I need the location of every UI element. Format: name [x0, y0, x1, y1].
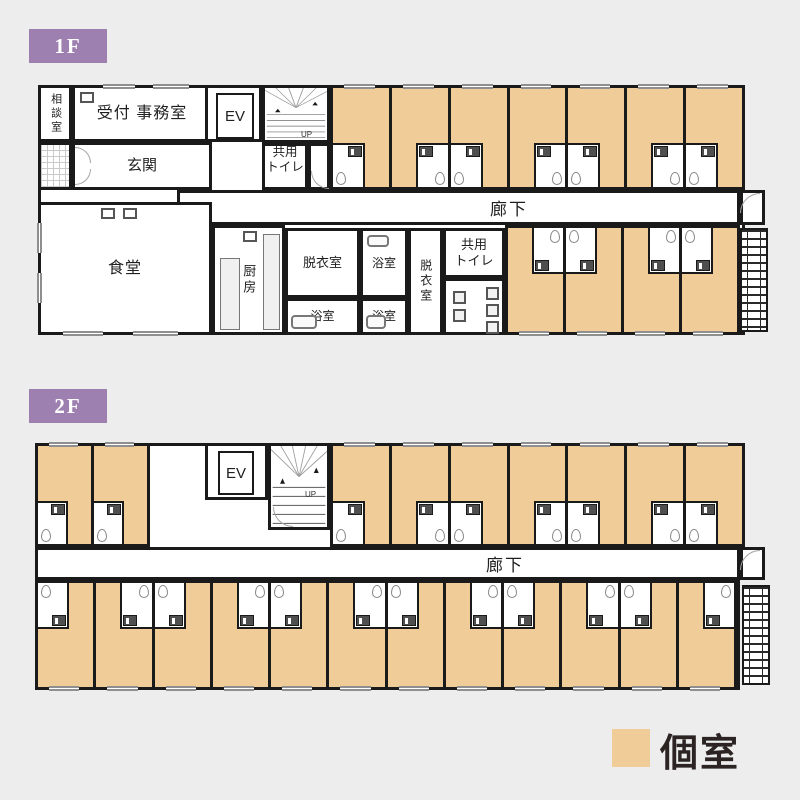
floor2-topleft-room-row	[35, 443, 150, 547]
sink-icon	[123, 615, 137, 626]
room-bathroom	[703, 583, 734, 629]
door-arc	[740, 550, 760, 570]
room-bathroom	[534, 143, 566, 187]
private-room	[268, 583, 326, 687]
window-mark	[344, 442, 375, 447]
toilet-icon	[435, 172, 445, 185]
private-room	[91, 446, 147, 544]
kitchen-counter-icon	[220, 258, 240, 330]
private-room	[333, 88, 389, 187]
private-room	[679, 228, 737, 332]
window-mark	[37, 223, 42, 253]
sink-icon	[348, 146, 362, 157]
private-room	[38, 583, 93, 687]
elevator-2f-label: EV	[226, 465, 246, 482]
room-bathroom	[155, 583, 186, 629]
window-mark	[103, 84, 135, 89]
floor2-badge: 2F	[29, 389, 107, 423]
window-mark	[635, 331, 665, 336]
sink-icon	[583, 504, 597, 515]
sink-icon	[107, 504, 121, 515]
private-room	[565, 446, 624, 544]
room-bathroom	[651, 143, 683, 187]
sink-icon	[535, 260, 549, 271]
sink-icon	[419, 504, 433, 515]
external-stair-2f	[742, 585, 770, 685]
room-bathroom	[333, 501, 365, 544]
private-room	[624, 88, 683, 187]
sink-icon	[583, 146, 597, 157]
room-bathroom	[120, 583, 151, 629]
private-room	[683, 446, 742, 544]
toilet-icon	[552, 172, 562, 185]
window-mark	[515, 686, 545, 691]
legend-swatch	[612, 729, 650, 767]
door-arc	[75, 147, 91, 163]
door-arc	[311, 171, 329, 189]
private-room	[389, 88, 448, 187]
floor2-corridor-label: 廊下	[486, 556, 524, 576]
bath-room-lower-mid: 浴室	[360, 298, 408, 335]
toilet-icon	[550, 230, 560, 243]
staircase-icon	[265, 88, 327, 140]
kitchen: 厨房	[212, 225, 285, 335]
room-bathroom	[271, 583, 302, 629]
floor2-plan: EV UP 廊下	[35, 443, 770, 690]
elevator-2f: EV	[218, 451, 254, 495]
room-bathroom	[416, 143, 448, 187]
room-bathroom	[470, 583, 501, 629]
private-room	[618, 583, 676, 687]
reception-office-label: 受付 事務室	[97, 104, 187, 123]
window-mark	[282, 686, 312, 691]
floor1-bottom-room-row	[505, 225, 740, 335]
room-bathroom	[686, 501, 718, 544]
private-room	[385, 583, 443, 687]
window-mark	[697, 84, 728, 89]
private-room	[507, 88, 566, 187]
sink-icon	[466, 146, 480, 157]
private-room	[676, 583, 734, 687]
dining-room-label: 食堂	[108, 259, 142, 278]
toilet-icon	[391, 585, 401, 598]
private-room	[559, 583, 617, 687]
toilet-icon	[158, 585, 168, 598]
room-bathroom	[686, 143, 718, 187]
private-room	[326, 583, 384, 687]
consult-room: 相談室	[38, 85, 72, 142]
window-mark	[462, 442, 493, 447]
elevator-1f-label: EV	[225, 108, 245, 125]
private-room	[683, 88, 742, 187]
room-bathroom	[451, 143, 483, 187]
private-room	[448, 446, 507, 544]
private-room	[621, 228, 679, 332]
entrance-hall: 玄関	[72, 142, 212, 190]
sink-icon	[537, 146, 551, 157]
toilet-icon	[552, 529, 562, 542]
window-mark	[697, 442, 728, 447]
basin-icon	[243, 231, 257, 242]
sink-icon	[635, 615, 649, 626]
bathtub-icon	[366, 315, 386, 329]
toilet-icon	[624, 585, 634, 598]
sink-icon	[348, 504, 362, 515]
private-room	[333, 446, 389, 544]
toilet-icon	[569, 230, 579, 243]
private-room	[448, 88, 507, 187]
sink-icon	[169, 615, 183, 626]
room-bathroom	[504, 583, 535, 629]
table-icon	[101, 208, 115, 219]
private-room	[624, 446, 683, 544]
private-room	[565, 88, 624, 187]
window-mark	[344, 84, 375, 89]
window-mark	[462, 84, 493, 89]
sink-icon	[701, 504, 715, 515]
toilet-icon	[41, 585, 51, 598]
door-arc	[75, 169, 91, 185]
elevator-1f: EV	[216, 93, 254, 139]
room-bathroom	[621, 583, 652, 629]
toilet-icon	[139, 585, 149, 598]
sink-icon	[537, 504, 551, 515]
sink-icon	[466, 504, 480, 515]
window-mark	[37, 273, 42, 303]
toilet-icon	[255, 585, 265, 598]
room-bathroom	[682, 228, 713, 274]
external-stair-1f	[740, 228, 768, 332]
entrance-porch	[38, 142, 72, 190]
sink-icon	[402, 615, 416, 626]
window-mark	[403, 442, 434, 447]
sink-icon	[240, 615, 254, 626]
window-mark	[399, 686, 429, 691]
floor1-top-room-row	[330, 85, 745, 190]
toilet-icon	[488, 585, 498, 598]
kitchen-counter-icon	[263, 234, 280, 330]
toilet-icon	[571, 529, 581, 542]
floor2-topright-room-row	[330, 443, 745, 547]
room-bathroom	[568, 143, 600, 187]
window-mark	[638, 84, 669, 89]
private-room	[38, 446, 91, 544]
window-mark	[521, 442, 552, 447]
toilet-icon	[666, 230, 676, 243]
room-bathroom	[353, 583, 384, 629]
private-room	[389, 446, 448, 544]
floor2-bottom-room-row	[35, 580, 737, 690]
bench-icon	[486, 287, 499, 300]
shared-toilet-lower-label: 共用 トイレ	[454, 237, 493, 268]
table-icon	[123, 208, 137, 219]
private-room	[507, 446, 566, 544]
toilet-icon	[274, 585, 284, 598]
room-bathroom	[38, 501, 68, 544]
window-mark	[63, 331, 103, 336]
bench-icon	[486, 321, 499, 334]
sink-icon	[654, 146, 668, 157]
sink-icon	[518, 615, 532, 626]
window-mark	[573, 686, 603, 691]
room-bathroom	[333, 143, 365, 187]
dressing-room-right: 脱衣室	[408, 228, 443, 335]
private-room	[93, 583, 151, 687]
toilet-icon	[454, 529, 464, 542]
sink-icon	[706, 615, 720, 626]
sink-icon	[651, 260, 665, 271]
window-mark	[49, 442, 78, 447]
room-bathroom	[388, 583, 419, 629]
toilet-icon	[454, 172, 464, 185]
window-mark	[577, 331, 607, 336]
shared-toilet-upper-label: 共用 トイレ	[259, 145, 311, 175]
stair-landing-1f	[308, 143, 330, 190]
toilet-icon	[689, 529, 699, 542]
window-mark	[580, 442, 611, 447]
window-mark	[403, 84, 434, 89]
room-bathroom	[586, 583, 617, 629]
shared-toilet-lower: 共用 トイレ	[443, 228, 505, 278]
window-mark	[521, 84, 552, 89]
stairs-up-label-1f: UP	[301, 130, 312, 139]
bath-room-upper: 浴室	[360, 228, 408, 298]
floor2-corridor: 廊下	[35, 547, 740, 580]
room-bathroom	[532, 228, 563, 274]
sink-icon	[356, 615, 370, 626]
window-mark	[690, 686, 720, 691]
consult-room-label: 相談室	[48, 93, 61, 135]
bench-icon	[453, 309, 466, 322]
toilet-icon	[685, 230, 695, 243]
window-mark	[519, 331, 549, 336]
room-bathroom	[94, 501, 124, 544]
floorplan-page: { "colors":{"background":"#ededee","wall…	[0, 0, 800, 800]
private-room	[508, 228, 563, 332]
stairs-up-label-2f: UP	[305, 490, 316, 499]
toilet-icon	[670, 172, 680, 185]
sink-icon	[580, 260, 594, 271]
room-bathroom	[237, 583, 268, 629]
window-mark	[632, 686, 662, 691]
window-mark	[49, 686, 79, 691]
sink-icon	[473, 615, 487, 626]
dressing-room-left-label: 脱衣室	[303, 255, 342, 271]
sink-icon	[285, 615, 299, 626]
bathtub-icon	[291, 315, 317, 329]
private-room	[443, 583, 501, 687]
bath-room-lower-left: 浴室	[285, 298, 360, 335]
bath-room-upper-label: 浴室	[372, 256, 396, 270]
private-room	[210, 583, 268, 687]
room-bathroom	[451, 501, 483, 544]
window-mark	[224, 686, 254, 691]
window-mark	[638, 442, 669, 447]
floor1-corridor-label: 廊下	[490, 200, 528, 220]
staircase-1f	[262, 85, 330, 143]
sink-icon	[701, 146, 715, 157]
corridor-end-door-2f	[740, 547, 765, 580]
bench-area	[443, 278, 505, 335]
toilet-icon	[435, 529, 445, 542]
window-mark	[105, 442, 134, 447]
window-mark	[340, 686, 370, 691]
bathtub-icon	[367, 235, 389, 247]
corridor-end-door-1f	[740, 190, 765, 225]
room-bathroom	[38, 583, 69, 629]
room-bathroom	[416, 501, 448, 544]
bench-icon	[486, 304, 499, 317]
door-arc	[740, 193, 760, 213]
toilet-icon	[336, 529, 346, 542]
toilet-icon	[689, 172, 699, 185]
bench-icon	[453, 291, 466, 304]
toilet-icon	[41, 529, 51, 542]
private-room	[152, 583, 210, 687]
room-bathroom	[651, 501, 683, 544]
private-room	[563, 228, 621, 332]
dressing-room-left: 脱衣室	[285, 228, 360, 298]
floor1-corridor: 廊下	[177, 190, 740, 225]
toilet-icon	[605, 585, 615, 598]
window-mark	[133, 331, 178, 336]
kitchen-label: 厨房	[241, 264, 257, 296]
window-mark	[166, 686, 196, 691]
floor1-badge: 1F	[29, 29, 107, 63]
toilet-icon	[670, 529, 680, 542]
window-mark	[580, 84, 611, 89]
window-mark	[693, 331, 723, 336]
window-mark	[107, 686, 137, 691]
dining-room: 食堂	[38, 202, 212, 335]
legend-label: 個室	[660, 722, 740, 777]
sink-icon	[51, 504, 65, 515]
sink-icon	[589, 615, 603, 626]
toilet-icon	[97, 529, 107, 542]
reception-office-room: 受付 事務室	[72, 85, 212, 142]
toilet-icon	[336, 172, 346, 185]
toilet-icon	[721, 585, 731, 598]
window-mark	[153, 84, 189, 89]
room-bathroom	[648, 228, 679, 274]
toilet-icon	[571, 172, 581, 185]
room-bathroom	[566, 228, 597, 274]
sink-icon	[654, 504, 668, 515]
toilet-icon	[507, 585, 517, 598]
sink-icon	[52, 615, 66, 626]
room-bathroom	[568, 501, 600, 544]
sink-icon	[696, 260, 710, 271]
toilet-icon	[372, 585, 382, 598]
private-room	[501, 583, 559, 687]
entrance-label: 玄関	[127, 157, 157, 175]
basin-icon	[80, 92, 94, 103]
room-bathroom	[534, 501, 566, 544]
staircase-2f	[268, 443, 330, 530]
window-mark	[457, 686, 487, 691]
dressing-room-right-label: 脱衣室	[418, 259, 432, 304]
floor1-plan: 相談室 受付 事務室 EV UP 共用 トイレ	[35, 85, 770, 335]
sink-icon	[419, 146, 433, 157]
